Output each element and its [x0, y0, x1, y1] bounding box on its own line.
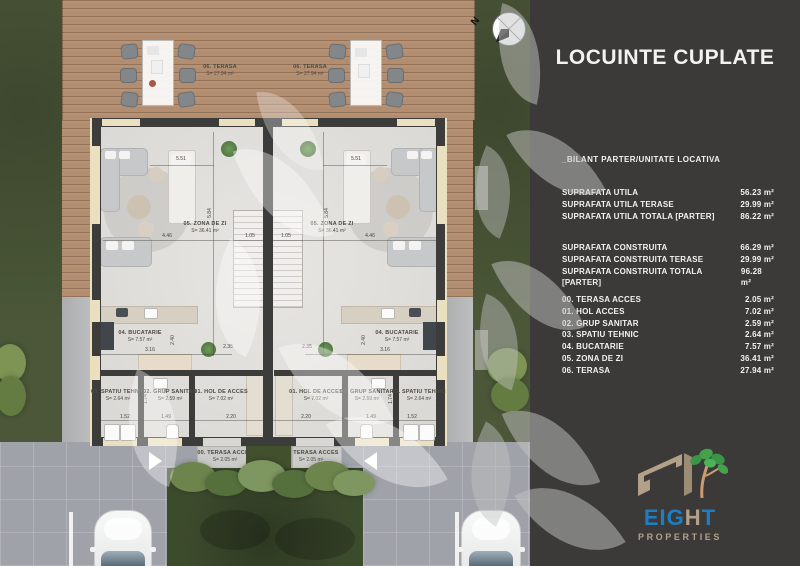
- window: [437, 300, 445, 322]
- room-label: 06. TERASA: [562, 365, 610, 377]
- room-value: 2.05 m²: [745, 294, 774, 306]
- windshield: [101, 551, 145, 566]
- deck-strip-right: [443, 120, 473, 297]
- side-table: [149, 167, 164, 182]
- chair: [120, 68, 137, 83]
- room-label-zona-de-zi: 05. ZONA DE ZIS= 36.41 m²: [311, 221, 354, 234]
- window: [219, 119, 255, 126]
- hob: [116, 308, 128, 317]
- window: [437, 356, 445, 380]
- chair: [177, 43, 196, 60]
- bush: [491, 378, 529, 412]
- dim-label: 5.84: [324, 208, 330, 218]
- dim-label: 1.74: [388, 394, 394, 404]
- table-item: [358, 64, 370, 78]
- room-row: 03. SPATIU TEHNIC 2.64 m²: [530, 329, 800, 341]
- car-hood: [472, 518, 510, 540]
- dim-label: 1.05: [281, 233, 291, 239]
- deck-strip-left: [62, 120, 92, 297]
- stat-label: SUPRAFATA CONSTRUITA TERASE: [562, 254, 703, 266]
- dim-label: 1.52: [120, 414, 130, 420]
- cushion: [409, 241, 421, 250]
- room-label: 00. TERASA ACCES: [562, 294, 641, 306]
- window: [437, 146, 445, 224]
- chair: [120, 43, 138, 60]
- logo-building-tree-icon: [632, 444, 728, 502]
- dim-label: 1.52: [407, 414, 417, 420]
- chair: [328, 68, 345, 83]
- room-value: 36.41 m²: [740, 353, 774, 365]
- concrete-pad: [475, 166, 488, 210]
- chair: [328, 43, 346, 60]
- washer: [419, 424, 435, 441]
- stat-label: SUPRAFATA UTILA TERASE: [562, 199, 674, 211]
- info-panel: LOCUINTE CUPLATE _BILANT PARTER/UNITATE …: [530, 0, 800, 566]
- mirror: [519, 547, 525, 552]
- room-label-zona-de-zi: 05. ZONA DE ZIS= 36.41 m²: [184, 221, 227, 234]
- area-group-construita: SUPRAFATA CONSTRUITA 66.29 m² SUPRAFATA …: [530, 242, 800, 289]
- side-table: [373, 167, 388, 182]
- stat-label: SUPRAFATA UTILA: [562, 187, 638, 199]
- wardrobe: [275, 374, 293, 436]
- north-label: N: [469, 15, 482, 28]
- room-row: 06. TERASA 27.94 m²: [530, 365, 800, 377]
- entrance-door: [203, 438, 241, 446]
- room-row: 01. HOL ACCES 7.02 m²: [530, 306, 800, 318]
- toilet: [360, 424, 373, 439]
- room-value: 7.02 m²: [745, 306, 774, 318]
- car: [461, 510, 521, 566]
- room-row: 04. BUCATARIE 7.57 m²: [530, 341, 800, 353]
- compass-icon: [490, 10, 528, 48]
- side-table: [383, 221, 399, 237]
- washer: [120, 424, 136, 441]
- presentation-sheet: N: [0, 0, 800, 566]
- mirror: [457, 547, 463, 552]
- window: [397, 119, 435, 126]
- dim-label: 2.40: [361, 335, 367, 345]
- dim-label: 4.46: [365, 233, 375, 239]
- table-item: [147, 46, 159, 55]
- dim-label: 5.51: [176, 156, 186, 162]
- company-logo: EIGHT PROPERTIES: [625, 444, 735, 542]
- room-label-bucatarie: 04. BUCATARIES= 7.57 m²: [375, 330, 418, 343]
- windshield: [469, 551, 513, 566]
- party-wall: [263, 118, 273, 446]
- cushion: [105, 151, 116, 159]
- dim-label: 1.05: [245, 233, 255, 239]
- room-row: 05. ZONA DE ZI 36.41 m²: [530, 353, 800, 365]
- dim-line: [323, 165, 387, 166]
- coffee-table: [127, 195, 151, 219]
- room-label: 04. BUCATARIE: [562, 341, 624, 353]
- stat-row: SUPRAFATA UTILA TERASE 29.99 m²: [530, 199, 800, 211]
- staircase-left: [233, 210, 264, 308]
- dim-label: 3.16: [380, 347, 390, 353]
- room-value: 2.64 m²: [745, 329, 774, 341]
- cushion: [106, 241, 118, 250]
- cushion: [119, 151, 130, 159]
- dim-label: 4.46: [162, 233, 172, 239]
- chair: [387, 68, 404, 83]
- table-item: [355, 48, 367, 57]
- room-label-hol-acces: 01. HOL DE ACCESS= 7.02 m²: [194, 389, 248, 402]
- stat-value: 96.28 m²: [741, 266, 774, 290]
- window: [102, 119, 140, 126]
- stat-row: SUPRAFATA CONSTRUITA TERASE 29.99 m²: [530, 254, 800, 266]
- chair: [179, 68, 196, 83]
- dim-label: 2.35: [302, 344, 312, 350]
- wardrobe: [246, 374, 264, 436]
- dim-label: 1.74: [436, 394, 442, 404]
- partition: [138, 370, 144, 446]
- room-label-grup-sanitar: 02. GRUP SANITARS= 2.59 m²: [143, 389, 197, 402]
- area-group-utila: SUPRAFATA UTILA 56.23 m² SUPRAFATA UTILA…: [530, 187, 800, 222]
- room-label: 01. HOL ACCES: [562, 306, 625, 318]
- chair: [385, 91, 404, 108]
- sink: [144, 308, 158, 319]
- room-value: 27.94 m²: [740, 365, 774, 377]
- chair: [328, 91, 347, 108]
- dim-line: [100, 354, 232, 355]
- room-area-list: 00. TERASA ACCES 2.05 m² 01. HOL ACCES 7…: [530, 294, 800, 377]
- brand-subtitle: PROPERTIES: [625, 532, 735, 542]
- room-label-terasa: 06. TERASAS= 27.94 m²: [203, 64, 237, 77]
- washer: [104, 424, 120, 441]
- room-label-hol-acces: 01. HOL DE ACCESS= 7.02 m²: [289, 389, 343, 402]
- dim-label: 5.84: [207, 208, 213, 218]
- stat-row: SUPRAFATA UTILA 56.23 m²: [530, 187, 800, 199]
- chair: [385, 43, 404, 60]
- floor-plan: N: [0, 0, 530, 566]
- walkway-left: [62, 297, 92, 442]
- stat-value: 66.29 m²: [740, 242, 774, 254]
- dim-label: 2.20: [301, 414, 311, 420]
- dim-label: 1.74: [95, 394, 101, 404]
- stat-value: 29.99 m²: [740, 199, 774, 211]
- dim-label: 2.40: [170, 335, 176, 345]
- stat-value: 56.23 m²: [740, 187, 774, 199]
- garden-shade: [200, 510, 270, 550]
- room-label-terasa-acces: 00. TERASA ACCESS= 2.05 m²: [197, 450, 252, 463]
- room-label-terasa-acces: 00. TERASA ACCESS= 2.05 m²: [283, 450, 338, 463]
- cushion: [407, 151, 418, 159]
- stat-row: SUPRAFATA UTILA TOTALA [PARTER] 86.22 m²: [530, 211, 800, 223]
- dim-line: [97, 420, 440, 421]
- room-row: 02. GRUP SANITAR 2.59 m²: [530, 318, 800, 330]
- entrance-arrow-icon: [149, 452, 162, 470]
- dim-label: 3.16: [145, 347, 155, 353]
- window: [148, 438, 182, 446]
- dim-label: 5.51: [351, 156, 361, 162]
- room-value: 2.59 m²: [745, 318, 774, 330]
- parking-line: [69, 512, 73, 566]
- washer: [403, 424, 419, 441]
- cushion: [393, 241, 405, 250]
- side-table: [138, 221, 154, 237]
- partition: [101, 370, 263, 376]
- section-subtitle: _BILANT PARTER/UNITATE LOCATIVA: [562, 155, 720, 164]
- table-item: [151, 60, 163, 74]
- stat-row: SUPRAFATA CONSTRUITA 66.29 m²: [530, 242, 800, 254]
- chair: [177, 91, 196, 108]
- table-item: [149, 80, 156, 87]
- bush: [333, 470, 375, 496]
- sink: [381, 308, 395, 319]
- bath-sink: [153, 378, 168, 389]
- car: [94, 510, 152, 566]
- partition: [393, 370, 399, 446]
- stat-label: SUPRAFATA UTILA TOTALA [PARTER]: [562, 211, 715, 223]
- brand-name: EIGHT: [625, 507, 735, 529]
- dim-line: [150, 165, 214, 166]
- page-title: LOCUINTE CUPLATE: [530, 46, 800, 70]
- window: [92, 300, 100, 322]
- partition: [342, 370, 348, 446]
- parking-line: [455, 512, 459, 566]
- cushion: [421, 151, 432, 159]
- stat-label: SUPRAFATA CONSTRUITA TOTALA [PARTER]: [562, 266, 741, 290]
- coffee-table: [386, 195, 410, 219]
- entrance-arrow-icon: [364, 452, 377, 470]
- room-row: 00. TERASA ACCES 2.05 m²: [530, 294, 800, 306]
- cushion: [122, 241, 134, 250]
- dim-label: 1.49: [366, 414, 376, 420]
- plant: [300, 141, 316, 157]
- hob: [409, 308, 421, 317]
- stat-value: 29.99 m²: [740, 254, 774, 266]
- dim-line: [103, 240, 437, 241]
- partition: [274, 370, 436, 376]
- window: [92, 146, 100, 224]
- room-label-grup-sanitar: 02. GRUP SANITARS= 2.59 m²: [340, 389, 394, 402]
- toilet: [166, 424, 179, 439]
- room-label: 03. SPATIU TEHNIC: [562, 329, 639, 341]
- dim-label: 1.49: [161, 414, 171, 420]
- room-label-bucatarie: 04. BUCATARIES= 7.57 m²: [118, 330, 161, 343]
- stat-value: 86.22 m²: [740, 211, 774, 223]
- stat-label: SUPRAFATA CONSTRUITA: [562, 242, 667, 254]
- dim-label: 2.20: [226, 414, 236, 420]
- room-label-terasa: 06. TERASAS= 27.94 m²: [293, 64, 327, 77]
- car-hood: [104, 518, 142, 540]
- room-value: 7.57 m²: [745, 341, 774, 353]
- room-label: 05. ZONA DE ZI: [562, 353, 623, 365]
- compass: N: [472, 6, 532, 56]
- window: [282, 119, 318, 126]
- stat-row: SUPRAFATA CONSTRUITA TOTALA [PARTER] 96.…: [530, 266, 800, 290]
- plant: [221, 141, 237, 157]
- walkway-right: [443, 297, 473, 442]
- chair: [120, 91, 139, 108]
- staircase-right: [272, 210, 303, 308]
- entrance-door: [296, 438, 334, 446]
- dim-label: 1.74: [143, 394, 149, 404]
- garden-shade: [275, 518, 355, 560]
- window: [92, 356, 100, 380]
- room-label: 02. GRUP SANITAR: [562, 318, 639, 330]
- dim-label: 2.35: [223, 344, 233, 350]
- mirror: [150, 547, 156, 552]
- bath-sink: [371, 378, 386, 389]
- mirror: [90, 547, 96, 552]
- partition: [189, 370, 195, 446]
- dim-line: [305, 354, 437, 355]
- window: [355, 438, 389, 446]
